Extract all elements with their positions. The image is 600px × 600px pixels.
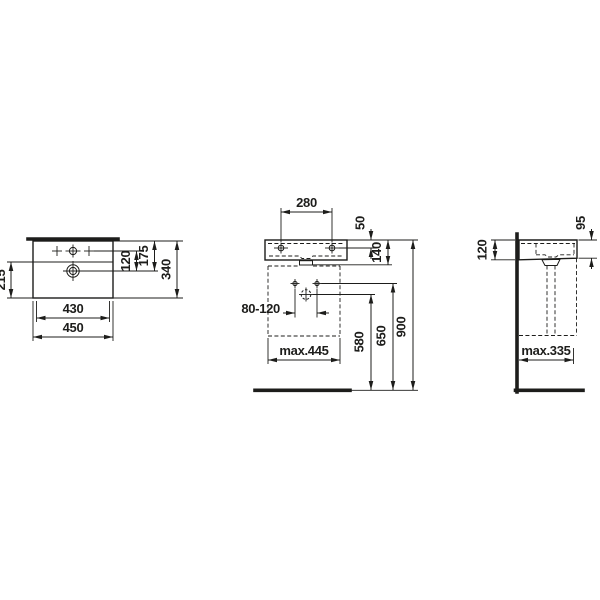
dim-label-650: 650 bbox=[374, 326, 389, 347]
basin-side-outline bbox=[519, 240, 577, 260]
dim-label-80-120: 80-120 bbox=[241, 301, 280, 316]
plan-view: 215 120 175 340 430 bbox=[0, 239, 183, 341]
dim-label-430: 430 bbox=[63, 301, 84, 316]
dim-bowl-front-depth: 215 bbox=[0, 262, 33, 298]
bowl-bottom-hidden-line bbox=[269, 256, 343, 259]
side-view: 120 95 max.335 bbox=[475, 216, 598, 392]
drain-fitting bbox=[300, 261, 313, 265]
drain-hole bbox=[63, 261, 83, 281]
dim-label-120: 120 bbox=[118, 251, 133, 272]
drain-connection bbox=[299, 288, 313, 302]
dim-fixing-hole-spacing: 280 bbox=[281, 195, 332, 242]
dim-back-to-drain: 175 bbox=[136, 241, 155, 271]
dim-label-580: 580 bbox=[352, 332, 367, 353]
dim-drain-outlet-height: 580 bbox=[352, 295, 372, 391]
dim-tap-to-drain: 120 bbox=[118, 251, 137, 272]
dim-label-450: 450 bbox=[63, 320, 84, 335]
supply-point-right bbox=[313, 279, 322, 288]
dim-label-max335: max.335 bbox=[521, 343, 570, 358]
basin-front-outline bbox=[265, 240, 347, 260]
dim-supply-spacing: 80-120 bbox=[241, 289, 329, 318]
dim-label-340: 340 bbox=[159, 259, 174, 280]
dim-supply-height: 650 bbox=[374, 284, 394, 391]
dim-label-280: 280 bbox=[296, 195, 317, 210]
dim-label-95: 95 bbox=[573, 216, 588, 230]
dim-label-215: 215 bbox=[0, 270, 8, 291]
drain-fitting-side bbox=[542, 259, 560, 265]
washbasin-technical-drawing: 215 120 175 340 430 bbox=[0, 0, 600, 600]
tap-hole-alt-right-cross bbox=[84, 246, 94, 256]
dim-max-cabinet-depth: max.335 bbox=[519, 343, 574, 364]
tap-hole-alt-left-cross bbox=[52, 246, 62, 256]
dim-inner-width: 430 bbox=[37, 301, 110, 322]
fixing-hole-left bbox=[274, 243, 288, 254]
dim-max-cabinet-width: max.445 bbox=[268, 338, 340, 364]
supply-point-left bbox=[291, 279, 300, 288]
tap-hole bbox=[66, 245, 81, 258]
bowl-bottom-hidden-line-side bbox=[536, 255, 574, 257]
dim-label-175: 175 bbox=[136, 246, 151, 267]
front-view: 280 bbox=[241, 195, 418, 390]
dim-label-max445: max.445 bbox=[279, 343, 328, 358]
dim-label-900: 900 bbox=[394, 317, 409, 338]
dim-label-side-120: 120 bbox=[475, 240, 490, 261]
fixing-hole-right bbox=[325, 243, 339, 254]
drawing-canvas: 215 120 175 340 430 bbox=[0, 0, 600, 600]
dim-label-140: 140 bbox=[369, 242, 384, 263]
dim-height-at-wall: 120 bbox=[475, 240, 516, 261]
dim-rim-height: 900 bbox=[394, 240, 414, 390]
dim-basin-height: 140 bbox=[369, 240, 388, 265]
dim-label-50: 50 bbox=[353, 216, 368, 230]
dim-overall-depth: 340 bbox=[159, 241, 178, 298]
